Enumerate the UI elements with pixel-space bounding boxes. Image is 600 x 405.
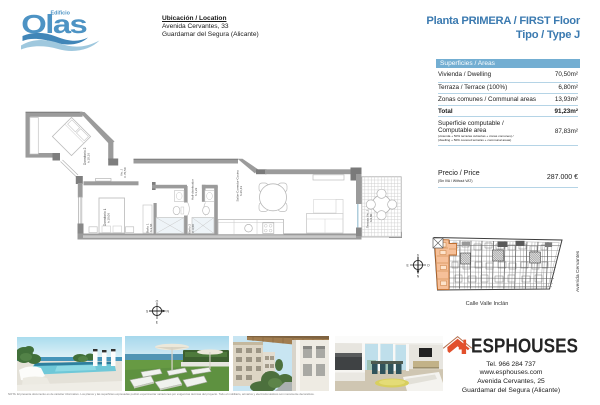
svg-text:N: N: [417, 275, 420, 279]
svg-text:N: N: [167, 310, 170, 314]
svg-text:Calle Valle Inclán: Calle Valle Inclán: [466, 301, 509, 307]
svg-text:E: E: [407, 264, 410, 268]
svg-text:Dormitorio 2: Dormitorio 2: [83, 147, 87, 165]
svg-text:Viv. J: Viv. J: [120, 168, 124, 176]
svg-text:Baño 1: Baño 1: [146, 223, 150, 233]
svg-text:Avenida Cervantes: Avenida Cervantes: [575, 250, 581, 292]
svg-text:O: O: [156, 300, 159, 304]
svg-text:h.6,80: h.6,80: [369, 213, 373, 222]
svg-text:Dormitorio 1: Dormitorio 1: [103, 208, 107, 226]
svg-text:h.10,06: h.10,06: [107, 213, 111, 223]
svg-text:h.26,43: h.26,43: [239, 186, 243, 196]
svg-text:h.3,60: h.3,60: [191, 224, 195, 233]
svg-text:E: E: [156, 321, 159, 325]
svg-text:h.10,16: h.10,16: [87, 153, 91, 163]
svg-text:h.70,50: h.70,50: [123, 167, 127, 177]
svg-text:Edificio: Edificio: [51, 10, 71, 16]
svg-text:Hall-distribuidor: Hall-distribuidor: [191, 179, 195, 200]
svg-text:h.1,22: h.1,22: [194, 187, 198, 196]
svg-text:Baño 2: Baño 2: [188, 224, 192, 234]
svg-text:ESPHOUSES: ESPHOUSES: [471, 336, 578, 356]
svg-text:S: S: [417, 254, 420, 258]
svg-text:S: S: [146, 310, 149, 314]
svg-text:Terraza Viv. J: Terraza Viv. J: [366, 210, 370, 228]
svg-text:Salón-Comedor-Cocina: Salón-Comedor-Cocina: [236, 170, 240, 202]
svg-text:h.3,66: h.3,66: [149, 223, 153, 232]
